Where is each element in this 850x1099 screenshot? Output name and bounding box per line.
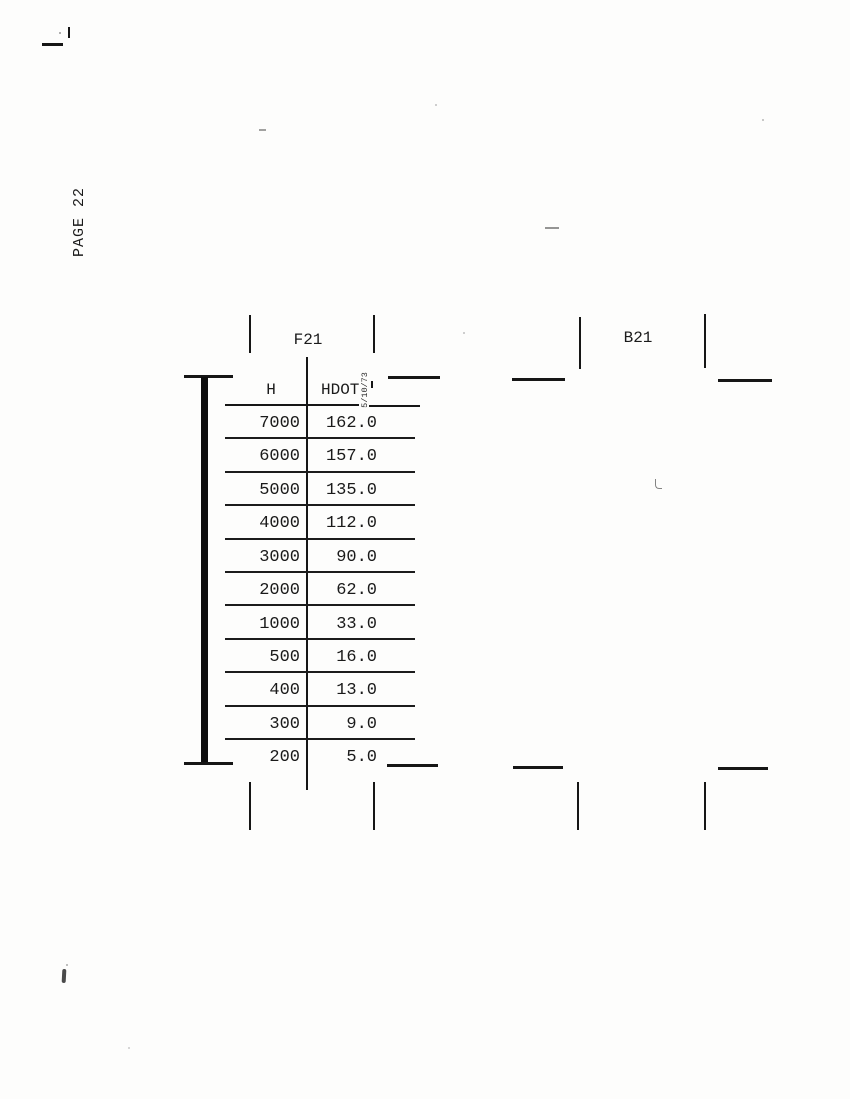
f21-top-left-tick [249,315,251,353]
row-separator [225,738,415,740]
row-separator [225,705,415,707]
hdot-value: 112.0 [307,514,377,534]
b21-top-left-tick [579,317,581,369]
date-note: 5/10/73 [360,371,370,409]
hdot-value: 135.0 [307,481,377,501]
h-value: 400 [220,681,300,701]
row-separator [225,671,415,673]
scan-speck [128,1047,130,1049]
ibeam-vertical-bar [201,377,208,764]
row-separator [225,604,415,606]
h-value: 4000 [220,514,300,534]
scan-speck [463,332,465,334]
b21-bottom-left-tick [577,782,579,830]
frame-label-f21: F21 [290,331,326,349]
scan-dash-artifact [259,129,266,131]
b21-top-right-mark [718,379,772,382]
page-number-label: PAGE 22 [71,187,89,257]
h-value: 2000 [220,581,300,601]
hdot-value: 16.0 [307,648,377,668]
row-separator [225,538,415,540]
header-underline-left [225,404,359,406]
scan-squiggle-artifact [655,479,662,489]
b21-top-right-tick [704,314,706,368]
date-note-tick [371,381,373,388]
h-value: 3000 [220,548,300,568]
hdot-value: 5.0 [307,748,377,768]
row-separator [225,437,415,439]
h-value: 5000 [220,481,300,501]
scan-dash-artifact [545,227,559,229]
row-separator [225,504,415,506]
column-header-hdot: HDOT [321,381,359,399]
b21-top-left-mark [512,378,565,381]
column-header-h: H [241,381,301,399]
hdot-value: 9.0 [307,715,377,735]
hdot-value: 13.0 [307,681,377,701]
scan-speck [59,32,61,34]
h-value: 200 [220,748,300,768]
row-separator [225,471,415,473]
b21-bottom-right-tick [704,782,706,830]
h-value: 7000 [220,414,300,434]
hdot-value: 62.0 [307,581,377,601]
f21-bottom-right-tick [373,782,375,830]
f21-bottom-right-mark [387,764,438,767]
scan-speck [762,119,764,121]
corner-tick-mark [68,27,70,38]
row-separator [225,571,415,573]
scan-speck [66,964,68,966]
frame-label-b21: B21 [620,329,656,347]
b21-bottom-left-mark [513,766,563,769]
hdot-value: 157.0 [307,447,377,467]
scan-speck [435,104,437,106]
corner-dash-mark [42,43,63,46]
f21-top-right-mark [388,376,440,379]
h-value: 6000 [220,447,300,467]
hdot-value: 162.0 [307,414,377,434]
b21-bottom-right-mark [718,767,768,770]
hdot-value: 90.0 [307,548,377,568]
hdot-value: 33.0 [307,615,377,635]
f21-bottom-left-tick [249,782,251,830]
ibeam-top-cap [184,375,233,378]
h-value: 300 [220,715,300,735]
scan-smudge-artifact [62,969,67,983]
scanned-document-page: { "page": { "number_label": "PAGE 22" },… [0,0,850,1099]
h-value: 500 [220,648,300,668]
header-underline-right [369,405,420,407]
h-value: 1000 [220,615,300,635]
f21-top-right-tick [373,315,375,353]
row-separator [225,638,415,640]
